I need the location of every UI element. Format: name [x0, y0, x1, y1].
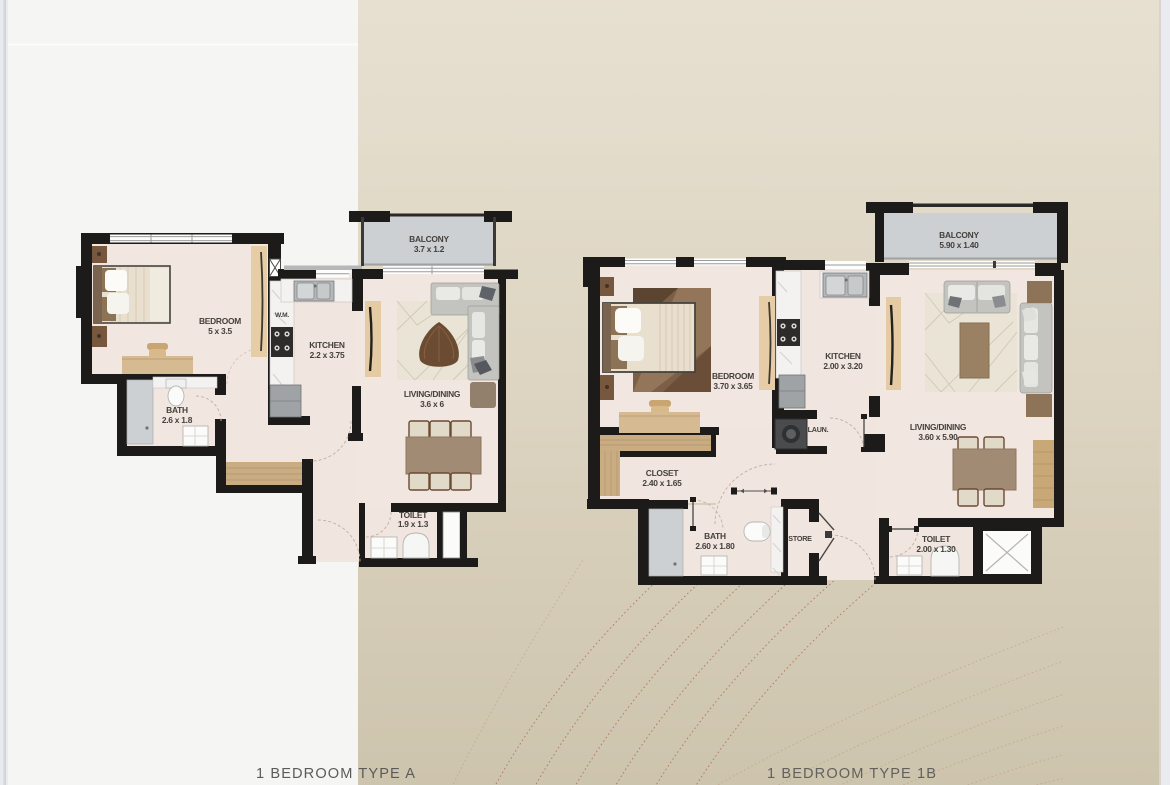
svg-text:BEDROOM: BEDROOM — [712, 371, 754, 381]
svg-text:5 x 3.5: 5 x 3.5 — [208, 326, 232, 336]
svg-text:2.60 x 1.80: 2.60 x 1.80 — [695, 541, 735, 551]
svg-text:BEDROOM: BEDROOM — [199, 316, 241, 326]
svg-text:2.00 x 1.30: 2.00 x 1.30 — [916, 544, 956, 554]
svg-text:LIVING/DINING: LIVING/DINING — [404, 389, 460, 399]
svg-text:2.6 x 1.8: 2.6 x 1.8 — [162, 415, 193, 425]
svg-text:3.60 x 5.90: 3.60 x 5.90 — [918, 432, 958, 442]
svg-text:1 BEDROOM TYPE A: 1 BEDROOM TYPE A — [256, 766, 416, 782]
svg-text:1.9 x 1.3: 1.9 x 1.3 — [398, 519, 429, 529]
svg-text:BATH: BATH — [704, 531, 726, 541]
svg-text:2.40 x 1.65: 2.40 x 1.65 — [642, 478, 682, 488]
svg-text:5.90 x 1.40: 5.90 x 1.40 — [939, 240, 979, 250]
svg-text:3.7 x 1.2: 3.7 x 1.2 — [414, 244, 445, 254]
svg-text:KITCHEN: KITCHEN — [309, 340, 345, 350]
svg-text:KITCHEN: KITCHEN — [825, 351, 861, 361]
svg-text:BALCONY: BALCONY — [409, 234, 449, 244]
svg-text:1 BEDROOM TYPE 1B: 1 BEDROOM TYPE 1B — [767, 766, 937, 782]
svg-text:LIVING/DINING: LIVING/DINING — [910, 422, 966, 432]
svg-text:BALCONY: BALCONY — [939, 230, 979, 240]
svg-text:2.2 x 3.75: 2.2 x 3.75 — [310, 350, 345, 360]
svg-text:STORE: STORE — [788, 534, 812, 543]
svg-text:BATH: BATH — [166, 405, 188, 415]
svg-text:W.M.: W.M. — [275, 312, 289, 319]
svg-text:3.6 x 6: 3.6 x 6 — [420, 399, 444, 409]
svg-text:3.70 x 3.65: 3.70 x 3.65 — [713, 381, 753, 391]
svg-text:CLOSET: CLOSET — [646, 468, 680, 478]
svg-text:LAUN.: LAUN. — [808, 425, 829, 434]
svg-text:TOILET: TOILET — [922, 534, 951, 544]
svg-text:2.00 x 3.20: 2.00 x 3.20 — [823, 361, 863, 371]
